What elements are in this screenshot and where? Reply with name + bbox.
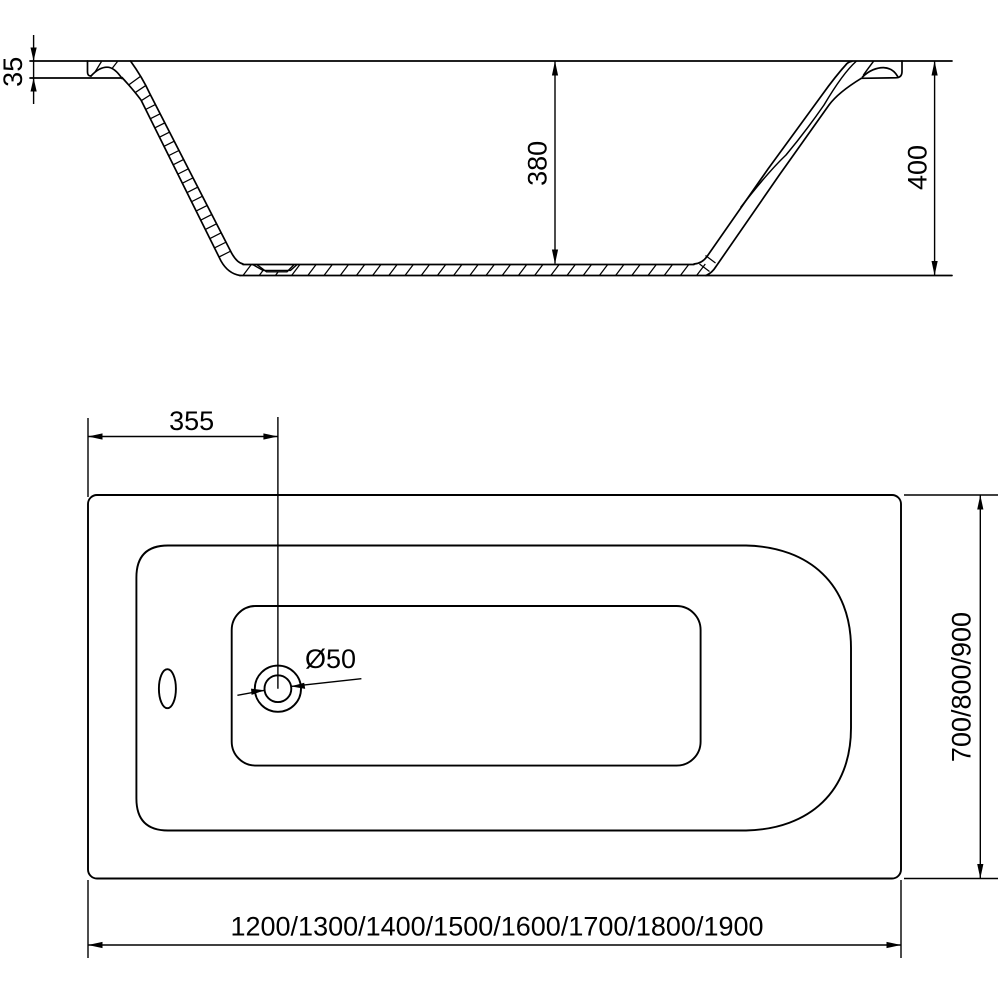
svg-text:700/800/900: 700/800/900 bbox=[946, 612, 976, 762]
svg-text:1200/1300/1400/1500/1600/1700/: 1200/1300/1400/1500/1600/1700/1800/1900 bbox=[230, 912, 763, 942]
svg-text:355: 355 bbox=[169, 406, 214, 436]
svg-text:Ø50: Ø50 bbox=[305, 644, 356, 674]
svg-text:35: 35 bbox=[0, 57, 28, 87]
svg-text:380: 380 bbox=[523, 141, 553, 186]
svg-text:400: 400 bbox=[902, 145, 932, 190]
